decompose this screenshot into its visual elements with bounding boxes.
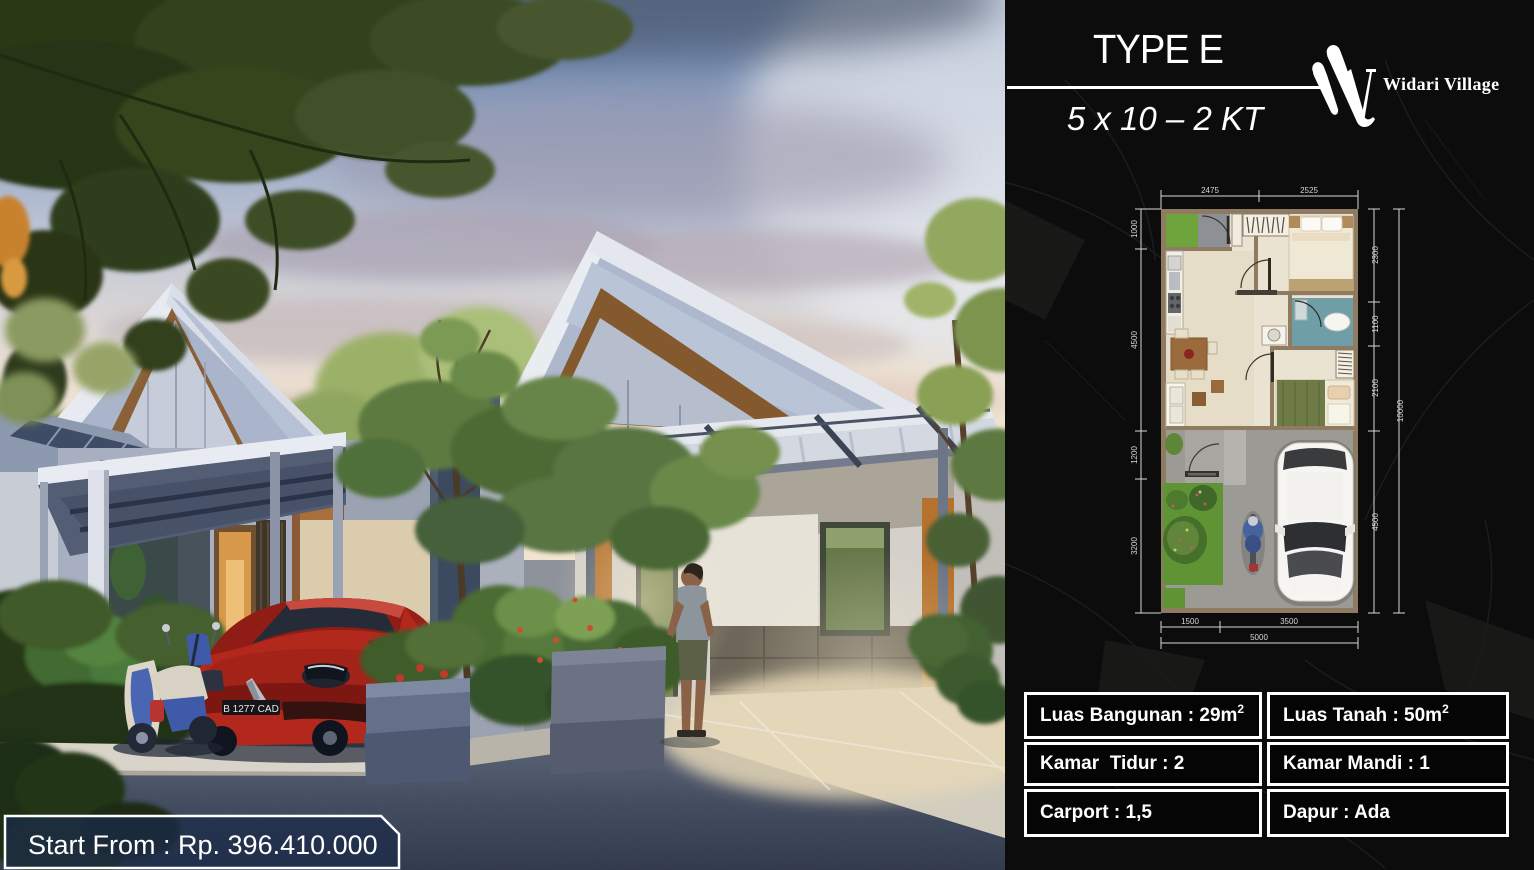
svg-text:1500: 1500 [1181, 617, 1199, 626]
svg-text:1100: 1100 [1371, 315, 1380, 333]
svg-text:10000: 10000 [1396, 399, 1405, 422]
svg-text:1200: 1200 [1130, 446, 1139, 464]
svg-text:B 1277 CAD: B 1277 CAD [223, 704, 279, 715]
svg-text:2100: 2100 [1371, 379, 1380, 397]
svg-text:4500: 4500 [1371, 513, 1380, 531]
svg-text:5000: 5000 [1250, 633, 1268, 642]
svg-text:4500: 4500 [1130, 331, 1139, 349]
svg-text:3200: 3200 [1130, 537, 1139, 555]
svg-text:1000: 1000 [1130, 220, 1139, 238]
svg-text:Start From : Rp. 396.410.000: Start From : Rp. 396.410.000 [28, 830, 378, 860]
svg-text:2475: 2475 [1201, 186, 1219, 195]
svg-text:2525: 2525 [1300, 186, 1318, 195]
svg-text:3500: 3500 [1280, 617, 1298, 626]
svg-text:2300: 2300 [1371, 246, 1380, 264]
